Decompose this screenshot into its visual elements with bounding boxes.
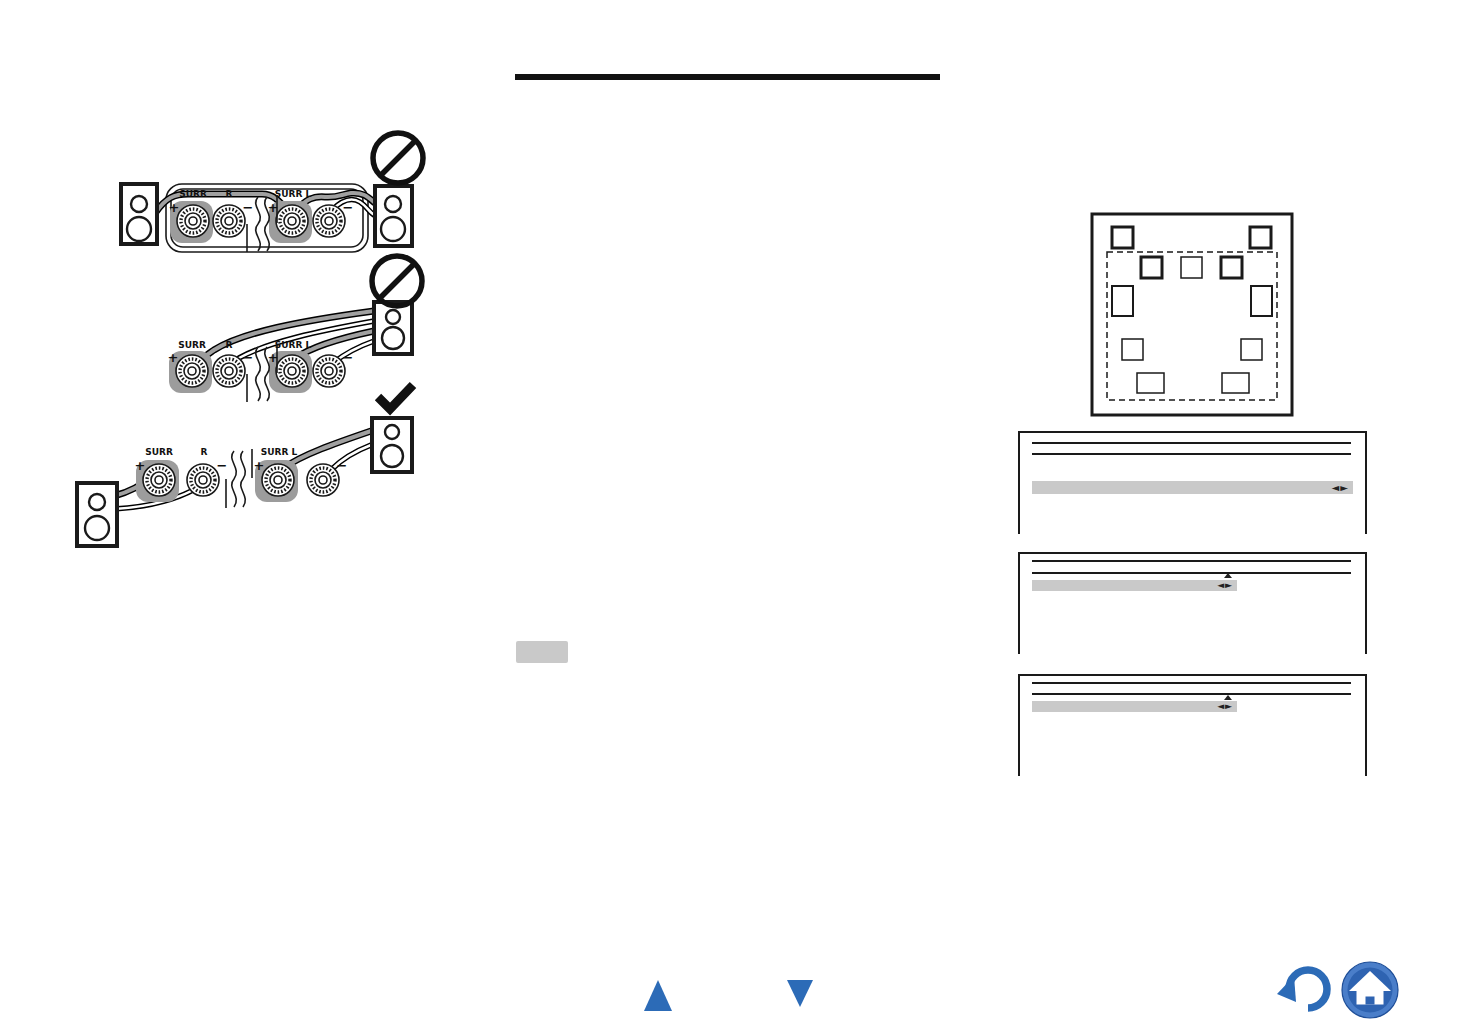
up-indicator-icon [1224, 573, 1232, 578]
speaker-box [1122, 339, 1143, 360]
binding-post [313, 205, 345, 237]
speaker-icon [375, 186, 412, 246]
speaker-box [1251, 286, 1272, 316]
room-outline [1092, 214, 1292, 415]
speaker-icon [372, 418, 412, 472]
left-right-selector-icon: ◄► [1332, 483, 1353, 493]
speaker-box [1112, 286, 1133, 316]
speaker-box [1221, 257, 1242, 278]
plus-sign: + [254, 458, 265, 473]
up-indicator-icon [1224, 695, 1232, 700]
osd-title-rule [1032, 572, 1351, 574]
speaker-box [1250, 227, 1271, 248]
listening-area-outline [1107, 252, 1277, 400]
plus-sign: + [169, 200, 180, 215]
minus-sign: − [217, 458, 228, 473]
plus-sign: + [135, 458, 146, 473]
speaker-icon [77, 483, 117, 546]
binding-post [276, 205, 308, 237]
osd-title-rule [1032, 693, 1351, 695]
cable-break-marks [226, 449, 252, 508]
binding-post [262, 464, 294, 496]
osd-title-rule [1032, 453, 1351, 455]
terminal-label-r: R [226, 340, 233, 350]
plus-sign: + [268, 350, 279, 365]
osd-highlight-bar: ◄► [1032, 481, 1353, 494]
minus-sign: − [243, 200, 254, 215]
minus-sign: − [343, 200, 354, 215]
speaker-box [1137, 373, 1164, 393]
osd-screenshot-1: ◄► [1018, 431, 1367, 534]
binding-post [213, 355, 245, 387]
return-icon[interactable] [1276, 962, 1332, 1012]
binding-post [213, 205, 245, 237]
terminal-label-surr-l: SURR L [275, 189, 312, 199]
binding-post [143, 464, 175, 496]
minus-sign: − [343, 350, 354, 365]
speaker-box [1112, 227, 1133, 248]
terminal-label-r: R [226, 189, 233, 199]
page-up-icon[interactable] [644, 980, 672, 1011]
home-icon[interactable] [1340, 960, 1400, 1020]
plus-sign: + [268, 200, 279, 215]
minus-sign: − [337, 458, 348, 473]
prohibited-icon [372, 256, 422, 306]
binding-post [177, 205, 209, 237]
speaker-box [1181, 257, 1202, 278]
left-right-selector-icon: ◄► [1217, 702, 1237, 711]
manual-page: SURR R SURR L + − + − [0, 0, 1458, 1032]
binding-post [307, 464, 339, 496]
speaker-icon [121, 184, 157, 244]
terminal-label-surr: SURR [179, 189, 207, 199]
minus-sign: − [243, 350, 254, 365]
terminal-label-surr: SURR [145, 447, 173, 457]
osd-title-rule [1032, 442, 1351, 444]
terminal-label-surr-l: SURR L [275, 340, 312, 350]
left-right-selector-icon: ◄► [1217, 581, 1237, 590]
speaker-box [1222, 373, 1249, 393]
osd-screenshot-2: ◄► [1018, 552, 1367, 654]
speaker-box [1141, 257, 1162, 278]
terminal-label-r: R [201, 447, 208, 457]
osd-highlight-bar: ◄► [1032, 701, 1237, 712]
osd-title-rule [1032, 560, 1351, 562]
check-icon [378, 385, 413, 409]
speaker-layout-diagram [1092, 214, 1292, 415]
binding-post [187, 464, 219, 496]
plus-sign: + [168, 350, 179, 365]
house-door [1366, 997, 1375, 1005]
wiring-wrong-example-2: SURR R SURR L + − + − [168, 256, 422, 402]
wiring-correct-example: SURR R SURR L + − + − [77, 385, 413, 546]
osd-highlight-bar: ◄► [1032, 580, 1237, 591]
wiring-wrong-example-1: SURR R SURR L + − + − [121, 133, 423, 252]
osd-screenshot-3: ◄► [1018, 674, 1367, 776]
osd-title-rule [1032, 682, 1351, 684]
prohibited-icon [373, 133, 423, 183]
terminal-label-surr: SURR [178, 340, 206, 350]
binding-post [313, 355, 345, 387]
binding-post [276, 355, 308, 387]
speaker-box [1241, 339, 1262, 360]
terminal-label-surr-l: SURR L [261, 447, 298, 457]
binding-post [176, 355, 208, 387]
page-down-icon[interactable] [787, 980, 813, 1007]
speaker-icon [374, 302, 412, 354]
